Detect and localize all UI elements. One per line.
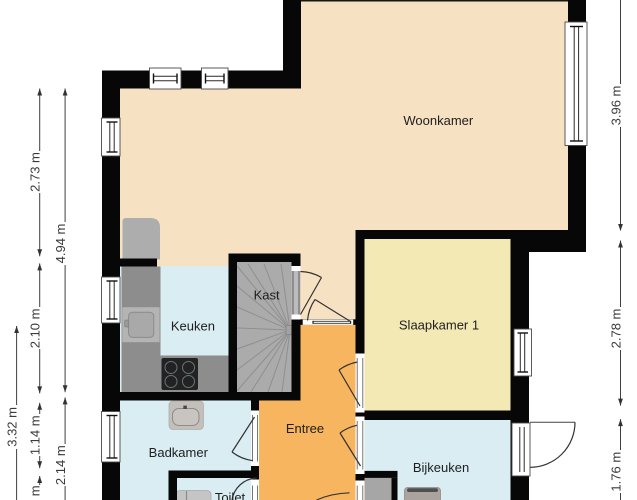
- svg-text:2.78 m: 2.78 m: [609, 309, 624, 349]
- svg-text:Entree: Entree: [286, 421, 324, 436]
- svg-text:2.73 m: 2.73 m: [28, 152, 43, 192]
- svg-text:2.05 m: 2.05 m: [28, 485, 43, 500]
- svg-text:1.76 m: 1.76 m: [609, 452, 624, 492]
- svg-text:2.10 m: 2.10 m: [28, 309, 43, 349]
- svg-text:Toilet: Toilet: [215, 490, 246, 500]
- svg-text:Bijkeuken: Bijkeuken: [413, 460, 469, 475]
- svg-text:Slaapkamer 1: Slaapkamer 1: [399, 317, 479, 332]
- svg-text:Keuken: Keuken: [171, 318, 215, 333]
- svg-text:3.32 m: 3.32 m: [5, 407, 20, 447]
- svg-text:Kast: Kast: [254, 288, 280, 303]
- svg-text:1.14 m: 1.14 m: [28, 415, 43, 455]
- svg-text:Badkamer: Badkamer: [149, 445, 209, 460]
- svg-text:3.96 m: 3.96 m: [609, 86, 624, 126]
- svg-text:4.94 m: 4.94 m: [53, 224, 68, 264]
- svg-text:Woonkamer: Woonkamer: [403, 113, 474, 128]
- svg-text:2.14 m: 2.14 m: [53, 445, 68, 485]
